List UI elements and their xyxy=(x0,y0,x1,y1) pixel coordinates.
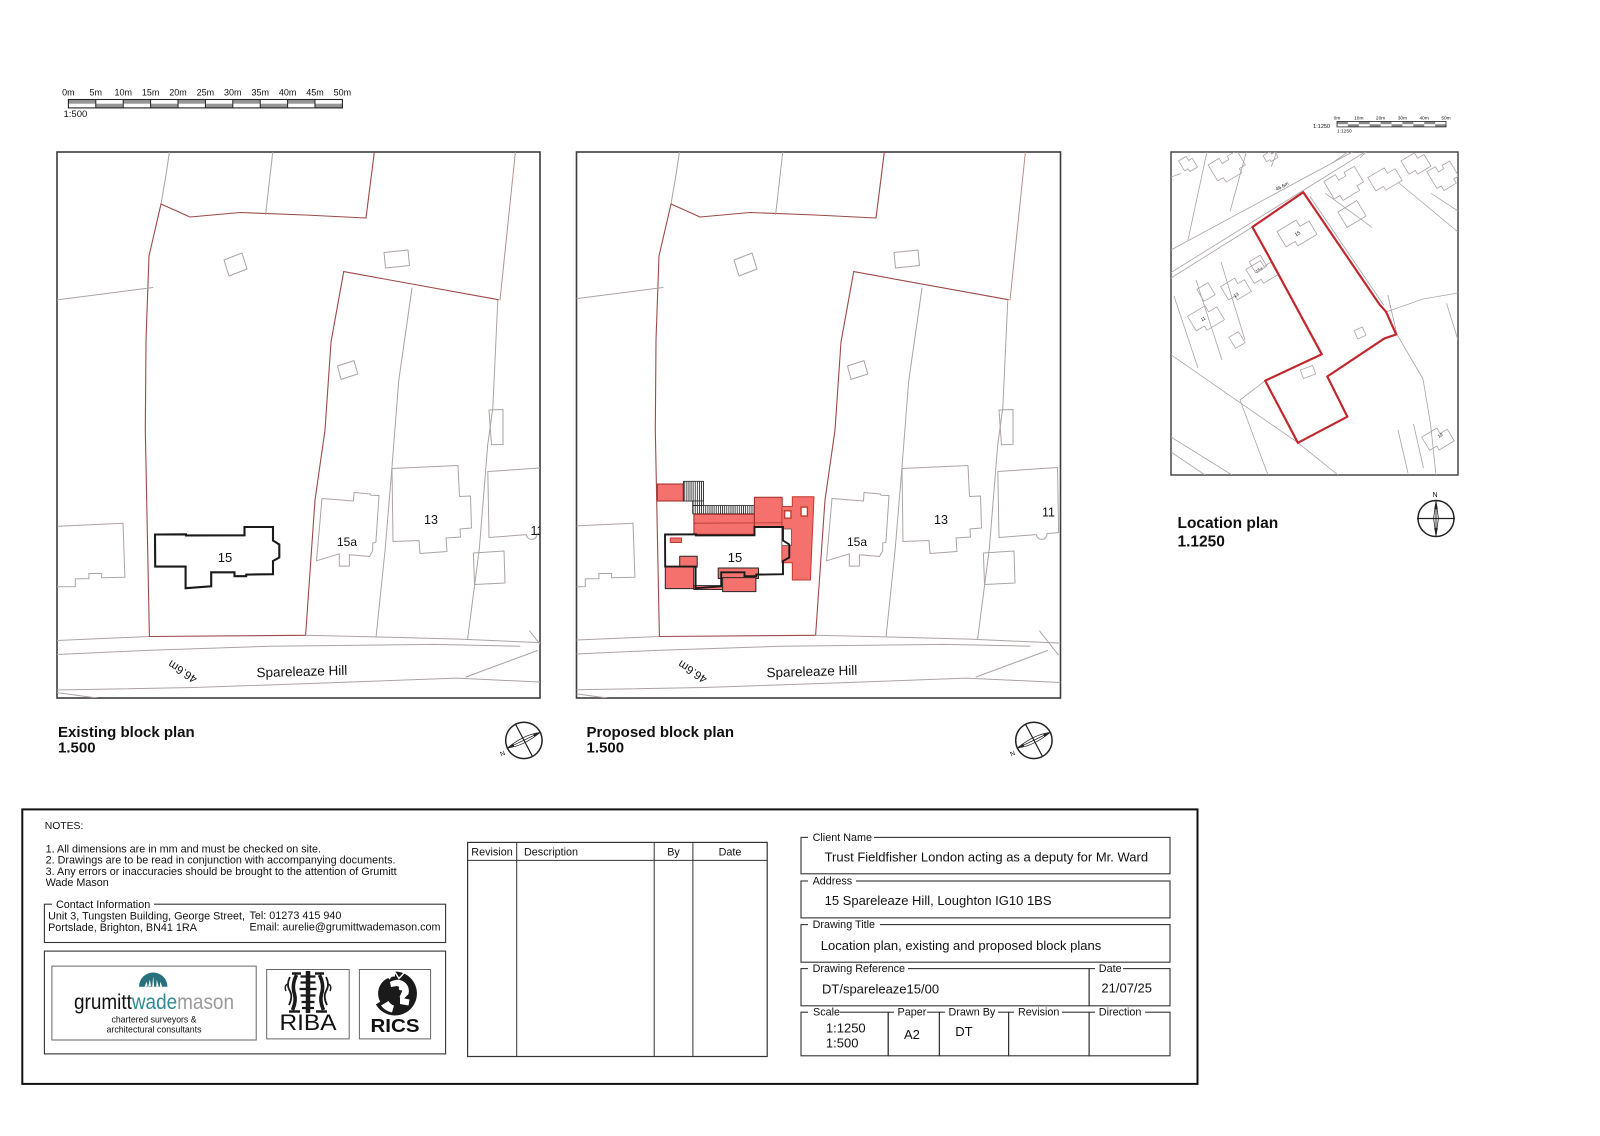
svg-text:10m: 10m xyxy=(114,88,132,98)
svg-text:45m: 45m xyxy=(306,88,324,98)
svg-text:Address: Address xyxy=(813,875,853,887)
svg-text:35m: 35m xyxy=(251,88,269,98)
svg-text:15: 15 xyxy=(1294,230,1302,238)
svg-text:1.500: 1.500 xyxy=(587,740,625,757)
svg-text:Revision: Revision xyxy=(471,847,512,859)
svg-text:1.500: 1.500 xyxy=(58,740,96,757)
svg-text:architectural consultants: architectural consultants xyxy=(107,1025,202,1036)
svg-text:Direction: Direction xyxy=(1099,1007,1142,1019)
svg-text:21/07/25: 21/07/25 xyxy=(1101,981,1152,996)
svg-text:1:1250: 1:1250 xyxy=(1313,124,1330,130)
svg-text:11: 11 xyxy=(1200,315,1207,322)
svg-text:Revision: Revision xyxy=(1018,1007,1059,1019)
svg-text:1:500: 1:500 xyxy=(64,109,88,120)
svg-text:2. Drawings are to be read in: 2. Drawings are to be read in conjunctio… xyxy=(46,855,396,867)
svg-text:40m: 40m xyxy=(1420,116,1429,122)
svg-text:0m: 0m xyxy=(1334,116,1341,122)
svg-text:Contact Information: Contact Information xyxy=(56,899,150,911)
svg-text:25m: 25m xyxy=(197,88,215,98)
svg-text:Date: Date xyxy=(1099,963,1122,975)
svg-text:Drawn By: Drawn By xyxy=(949,1007,996,1019)
svg-text:Description: Description xyxy=(524,847,578,859)
svg-text:1:1250: 1:1250 xyxy=(1337,129,1352,135)
svg-text:1:500: 1:500 xyxy=(826,1036,859,1051)
svg-text:46.6m: 46.6m xyxy=(1275,181,1290,193)
svg-text:20m: 20m xyxy=(169,88,187,98)
svg-text:11: 11 xyxy=(531,524,544,538)
svg-text:1:1250: 1:1250 xyxy=(826,1021,866,1036)
svg-text:10m: 10m xyxy=(1354,116,1363,122)
svg-text:40m: 40m xyxy=(279,88,297,98)
svg-text:Paper: Paper xyxy=(898,1007,927,1019)
svg-text:30m: 30m xyxy=(1398,116,1407,122)
svg-text:RIBA: RIBA xyxy=(280,1010,337,1035)
svg-text:Trust Fieldfisher London actin: Trust Fieldfisher London acting as a dep… xyxy=(825,850,1148,865)
svg-text:DT: DT xyxy=(955,1024,972,1039)
svg-text:Location plan, existing and pr: Location plan, existing and proposed blo… xyxy=(821,938,1102,953)
svg-text:50m: 50m xyxy=(334,88,352,98)
svg-text:11: 11 xyxy=(1042,506,1055,520)
svg-text:Wade Mason: Wade Mason xyxy=(46,877,109,889)
svg-text:RICS: RICS xyxy=(371,1015,420,1036)
svg-text:Unit 3, Tungsten Building, Geo: Unit 3, Tungsten Building, George Street… xyxy=(48,911,245,923)
svg-text:5m: 5m xyxy=(90,88,103,98)
svg-text:20m: 20m xyxy=(1376,116,1385,122)
svg-text:DT/spareleaze15/00: DT/spareleaze15/00 xyxy=(822,982,939,997)
svg-text:15m: 15m xyxy=(142,88,160,98)
svg-text:Tel: 01273 415 940: Tel: 01273 415 940 xyxy=(250,910,342,922)
svg-text:1.1250: 1.1250 xyxy=(1178,534,1225,551)
svg-text:A2: A2 xyxy=(904,1027,920,1042)
svg-text:0m: 0m xyxy=(62,88,75,98)
svg-text:19: 19 xyxy=(1437,432,1444,439)
svg-text:50m: 50m xyxy=(1441,116,1450,122)
svg-text:Client Name: Client Name xyxy=(813,832,872,844)
svg-text:Drawing Reference: Drawing Reference xyxy=(813,963,905,975)
svg-text:grumittwademason: grumittwademason xyxy=(74,990,234,1014)
svg-text:Date: Date xyxy=(719,847,742,859)
svg-text:15 Spareleaze Hill, Loughton I: 15 Spareleaze Hill, Loughton IG10 1BS xyxy=(825,893,1052,908)
svg-text:15: 15 xyxy=(218,550,232,565)
svg-text:Email: aurelie@grumittwademaso: Email: aurelie@grumittwademason.com xyxy=(250,922,441,934)
svg-text:Portslade, Brighton, BN41 1RA: Portslade, Brighton, BN41 1RA xyxy=(48,922,198,934)
svg-text:30m: 30m xyxy=(224,88,242,98)
svg-text:NOTES:: NOTES: xyxy=(45,821,84,832)
svg-text:N: N xyxy=(1433,492,1438,499)
svg-text:Scale: Scale xyxy=(813,1007,840,1019)
svg-text:Location plan: Location plan xyxy=(1178,515,1279,532)
svg-text:Drawing Title: Drawing Title xyxy=(813,919,875,931)
svg-text:15: 15 xyxy=(728,550,742,565)
svg-text:Proposed block plan: Proposed block plan xyxy=(587,724,735,741)
svg-text:13: 13 xyxy=(1233,291,1240,298)
svg-text:Existing block plan: Existing block plan xyxy=(58,724,195,741)
svg-text:By: By xyxy=(667,847,680,859)
